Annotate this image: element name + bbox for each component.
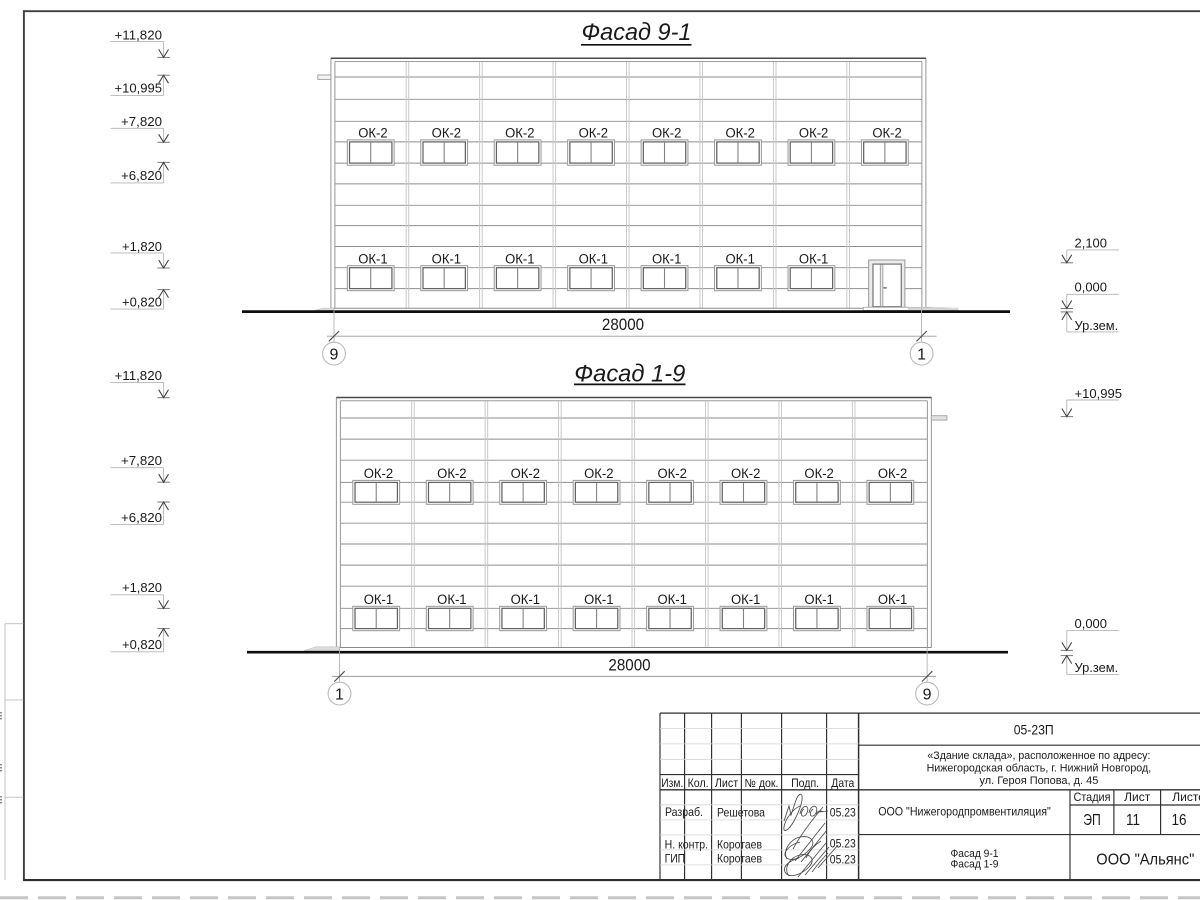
- svg-text:ОК-1: ОК-1: [658, 592, 687, 607]
- svg-text:ОК-1: ОК-1: [364, 592, 393, 607]
- svg-text:Фасад 1-9: Фасад 1-9: [574, 360, 685, 387]
- svg-text:11: 11: [1126, 812, 1140, 829]
- svg-text:ОК-2: ОК-2: [731, 466, 760, 481]
- svg-text:Лист: Лист: [1124, 790, 1151, 804]
- svg-text:+10,995: +10,995: [115, 81, 163, 96]
- svg-text:ОК-1: ОК-1: [511, 592, 540, 607]
- svg-text:ОК-2: ОК-2: [878, 466, 907, 481]
- svg-text:ОК-2: ОК-2: [437, 466, 466, 481]
- svg-text:ОК-2: ОК-2: [872, 126, 901, 141]
- svg-text:05.23: 05.23: [830, 852, 856, 866]
- svg-text:Разраб.: Разраб.: [665, 805, 703, 819]
- svg-text:+1,820: +1,820: [122, 580, 162, 595]
- svg-text:ОК-1: ОК-1: [579, 251, 608, 266]
- svg-text:ОК-1: ОК-1: [584, 592, 613, 607]
- svg-text:Подп.: Подп.: [791, 776, 819, 790]
- svg-text:Стадия: Стадия: [1074, 790, 1111, 804]
- svg-text:28000: 28000: [602, 316, 644, 334]
- svg-text:0,000: 0,000: [1075, 616, 1108, 631]
- svg-text:ОК-1: ОК-1: [652, 251, 681, 266]
- svg-text:ЭП: ЭП: [1083, 812, 1101, 829]
- svg-text:Нижегородская область, г. Нижн: Нижегородская область, г. Нижний Новгоро…: [927, 762, 1152, 774]
- svg-text:ОК-1: ОК-1: [804, 592, 833, 607]
- svg-text:ОК-2: ОК-2: [652, 126, 681, 141]
- svg-text:ОК-2: ОК-2: [658, 466, 687, 481]
- svg-text:+11,820: +11,820: [115, 28, 163, 43]
- svg-text:№ док.: № док.: [745, 776, 779, 790]
- svg-text:ОК-1: ОК-1: [505, 251, 534, 266]
- svg-text:28000: 28000: [608, 656, 650, 674]
- svg-text:ОК-1: ОК-1: [358, 251, 387, 266]
- svg-text:9: 9: [923, 686, 932, 703]
- svg-text:9: 9: [330, 346, 339, 363]
- svg-text:Дата: Дата: [831, 776, 854, 790]
- svg-text:ОК-1: ОК-1: [731, 592, 760, 607]
- svg-text:05.23: 05.23: [830, 805, 856, 819]
- svg-text:05-23П: 05-23П: [1014, 722, 1054, 738]
- svg-text:Изм.: Изм.: [661, 776, 683, 790]
- svg-text:Коротаев: Коротаев: [717, 838, 762, 852]
- svg-text:1: 1: [335, 686, 344, 703]
- svg-text:«Здание склада», расположенное: «Здание склада», расположенное по адресу…: [927, 750, 1150, 762]
- svg-text:16: 16: [1172, 812, 1187, 829]
- svg-text:ОК-1: ОК-1: [437, 592, 466, 607]
- svg-text:ООО "Нижегородпромвентиляция": ООО "Нижегородпромвентиляция": [878, 805, 1051, 819]
- svg-text:+0,820: +0,820: [122, 295, 162, 310]
- svg-text:Коротаев: Коротаев: [717, 852, 762, 866]
- svg-text:ОК-2: ОК-2: [358, 126, 387, 141]
- svg-text:+7,820: +7,820: [121, 114, 162, 129]
- svg-text:Н. контр.: Н. контр.: [665, 837, 709, 851]
- svg-text:Фасад 1-9: Фасад 1-9: [951, 858, 999, 870]
- svg-text:Фасад 9-1: Фасад 9-1: [582, 19, 692, 46]
- svg-text:Листов: Листов: [1172, 790, 1200, 804]
- svg-text:ОК-2: ОК-2: [799, 126, 828, 141]
- svg-text:ОК-1: ОК-1: [725, 251, 754, 266]
- svg-text:ГИП: ГИП: [665, 851, 686, 865]
- svg-text:Лист: Лист: [715, 776, 739, 790]
- svg-text:+10,995: +10,995: [1075, 386, 1123, 401]
- svg-text:ОК-2: ОК-2: [505, 126, 534, 141]
- svg-text:+1,820: +1,820: [122, 239, 162, 254]
- svg-text:+7,820: +7,820: [121, 453, 162, 468]
- svg-text:ОК-2: ОК-2: [432, 126, 461, 141]
- svg-text:05.23: 05.23: [830, 836, 856, 850]
- svg-text:Ур.зем.: Ур.зем.: [1075, 660, 1119, 675]
- svg-text:ООО "Альянс": ООО "Альянс": [1096, 852, 1194, 869]
- svg-text:ОК-2: ОК-2: [579, 126, 608, 141]
- svg-text:ОК-1: ОК-1: [799, 251, 828, 266]
- svg-text:+11,820: +11,820: [115, 368, 163, 383]
- svg-text:+6,820: +6,820: [121, 510, 162, 525]
- svg-text:Кол.: Кол.: [688, 776, 709, 790]
- svg-text:ОК-2: ОК-2: [725, 126, 754, 141]
- svg-text:ОК-1: ОК-1: [878, 592, 907, 607]
- svg-text:ОК-2: ОК-2: [804, 466, 833, 481]
- svg-text:1: 1: [917, 346, 926, 363]
- svg-text:ОК-2: ОК-2: [511, 466, 540, 481]
- svg-text:Ур.зем.: Ур.зем.: [1075, 318, 1119, 333]
- svg-text:ОК-2: ОК-2: [364, 466, 393, 481]
- svg-text:+6,820: +6,820: [121, 168, 162, 183]
- svg-text:ул. Героя Попова, д. 45: ул. Героя Попова, д. 45: [980, 775, 1099, 787]
- svg-text:Решетова: Решетова: [717, 805, 765, 819]
- svg-text:2,100: 2,100: [1075, 235, 1108, 250]
- svg-text:0,000: 0,000: [1075, 280, 1108, 295]
- svg-text:ОК-1: ОК-1: [432, 251, 461, 266]
- svg-text:ОК-2: ОК-2: [584, 466, 613, 481]
- svg-text:+0,820: +0,820: [122, 637, 162, 652]
